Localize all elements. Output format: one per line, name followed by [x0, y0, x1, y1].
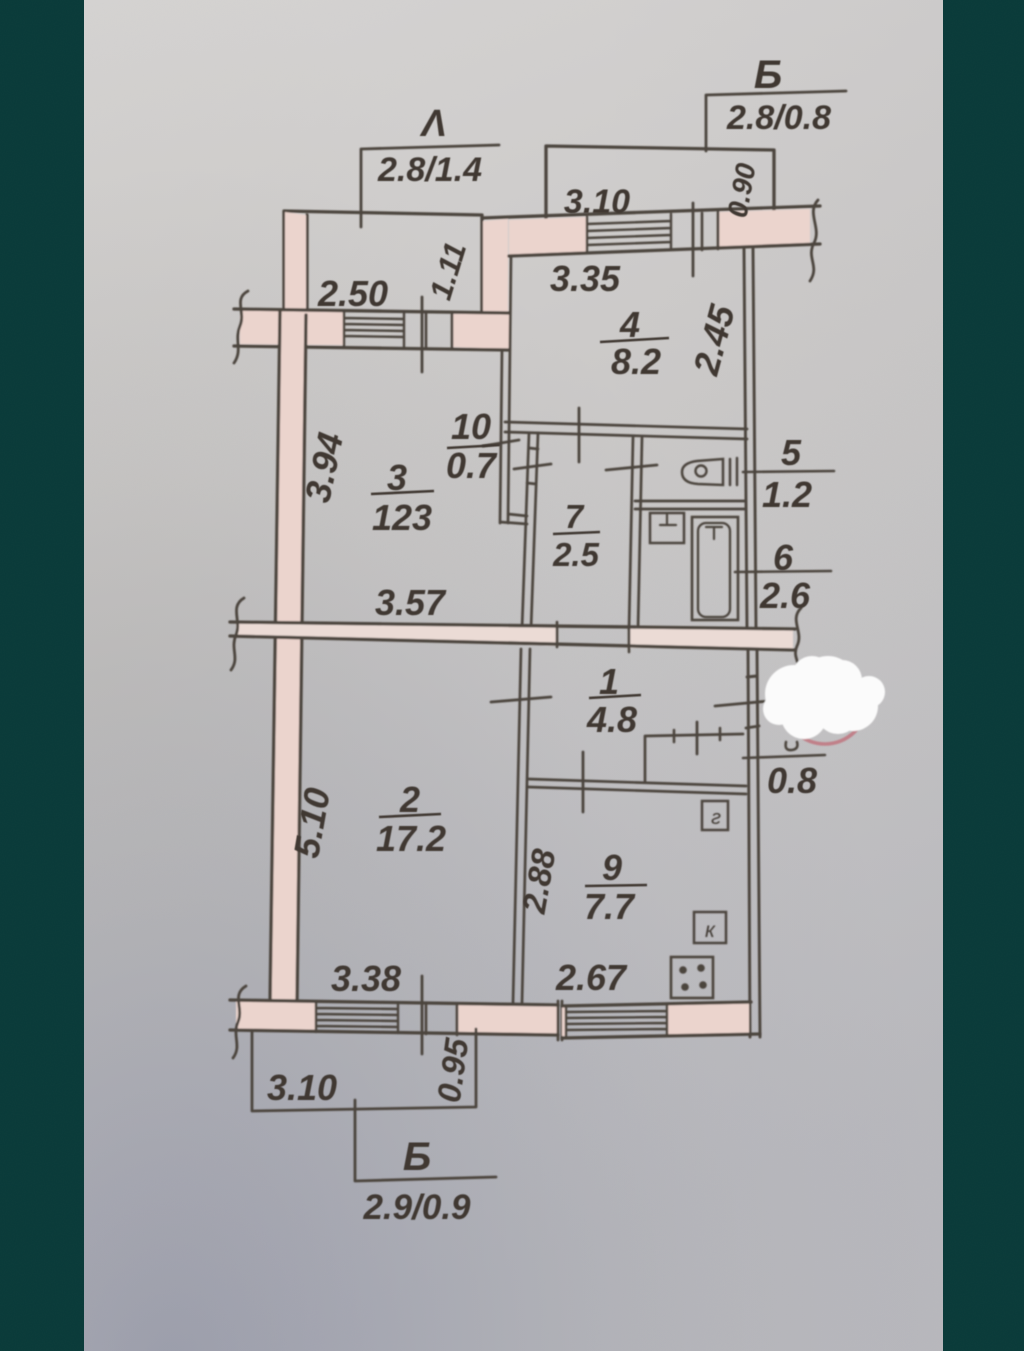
svg-text:3.35: 3.35	[550, 258, 621, 299]
svg-text:2.8/0.8: 2.8/0.8	[726, 99, 831, 137]
svg-text:г: г	[711, 807, 721, 829]
svg-text:3.10: 3.10	[564, 183, 630, 221]
svg-text:Λ: Λ	[419, 103, 446, 145]
svg-text:Б: Б	[403, 1135, 431, 1179]
svg-text:1.2: 1.2	[762, 474, 812, 515]
svg-text:3.38: 3.38	[331, 958, 401, 999]
svg-text:123: 123	[372, 497, 432, 538]
svg-text:6: 6	[773, 537, 794, 578]
svg-text:3.57: 3.57	[375, 582, 447, 623]
svg-text:2.5: 2.5	[552, 536, 600, 573]
svg-text:5: 5	[781, 432, 802, 473]
svg-text:9: 9	[602, 847, 622, 888]
svg-text:7.7: 7.7	[584, 886, 636, 927]
svg-text:2.8/1.4: 2.8/1.4	[377, 151, 482, 189]
svg-text:8.2: 8.2	[611, 341, 661, 382]
svg-text:10: 10	[451, 406, 491, 447]
svg-text:4.8: 4.8	[586, 699, 637, 740]
svg-text:2: 2	[399, 779, 420, 820]
svg-text:Б: Б	[754, 53, 782, 97]
svg-text:17.2: 17.2	[376, 818, 446, 859]
svg-text:2.6: 2.6	[759, 575, 811, 616]
svg-text:к: к	[705, 919, 716, 942]
svg-text:2.9/0.9: 2.9/0.9	[362, 1188, 471, 1227]
svg-text:0.7: 0.7	[446, 445, 498, 486]
svg-text:7: 7	[565, 498, 585, 535]
svg-text:2.50: 2.50	[317, 273, 388, 314]
svg-text:2.67: 2.67	[555, 957, 628, 998]
svg-text:3.10: 3.10	[267, 1067, 337, 1108]
svg-text:0.8: 0.8	[767, 760, 817, 801]
